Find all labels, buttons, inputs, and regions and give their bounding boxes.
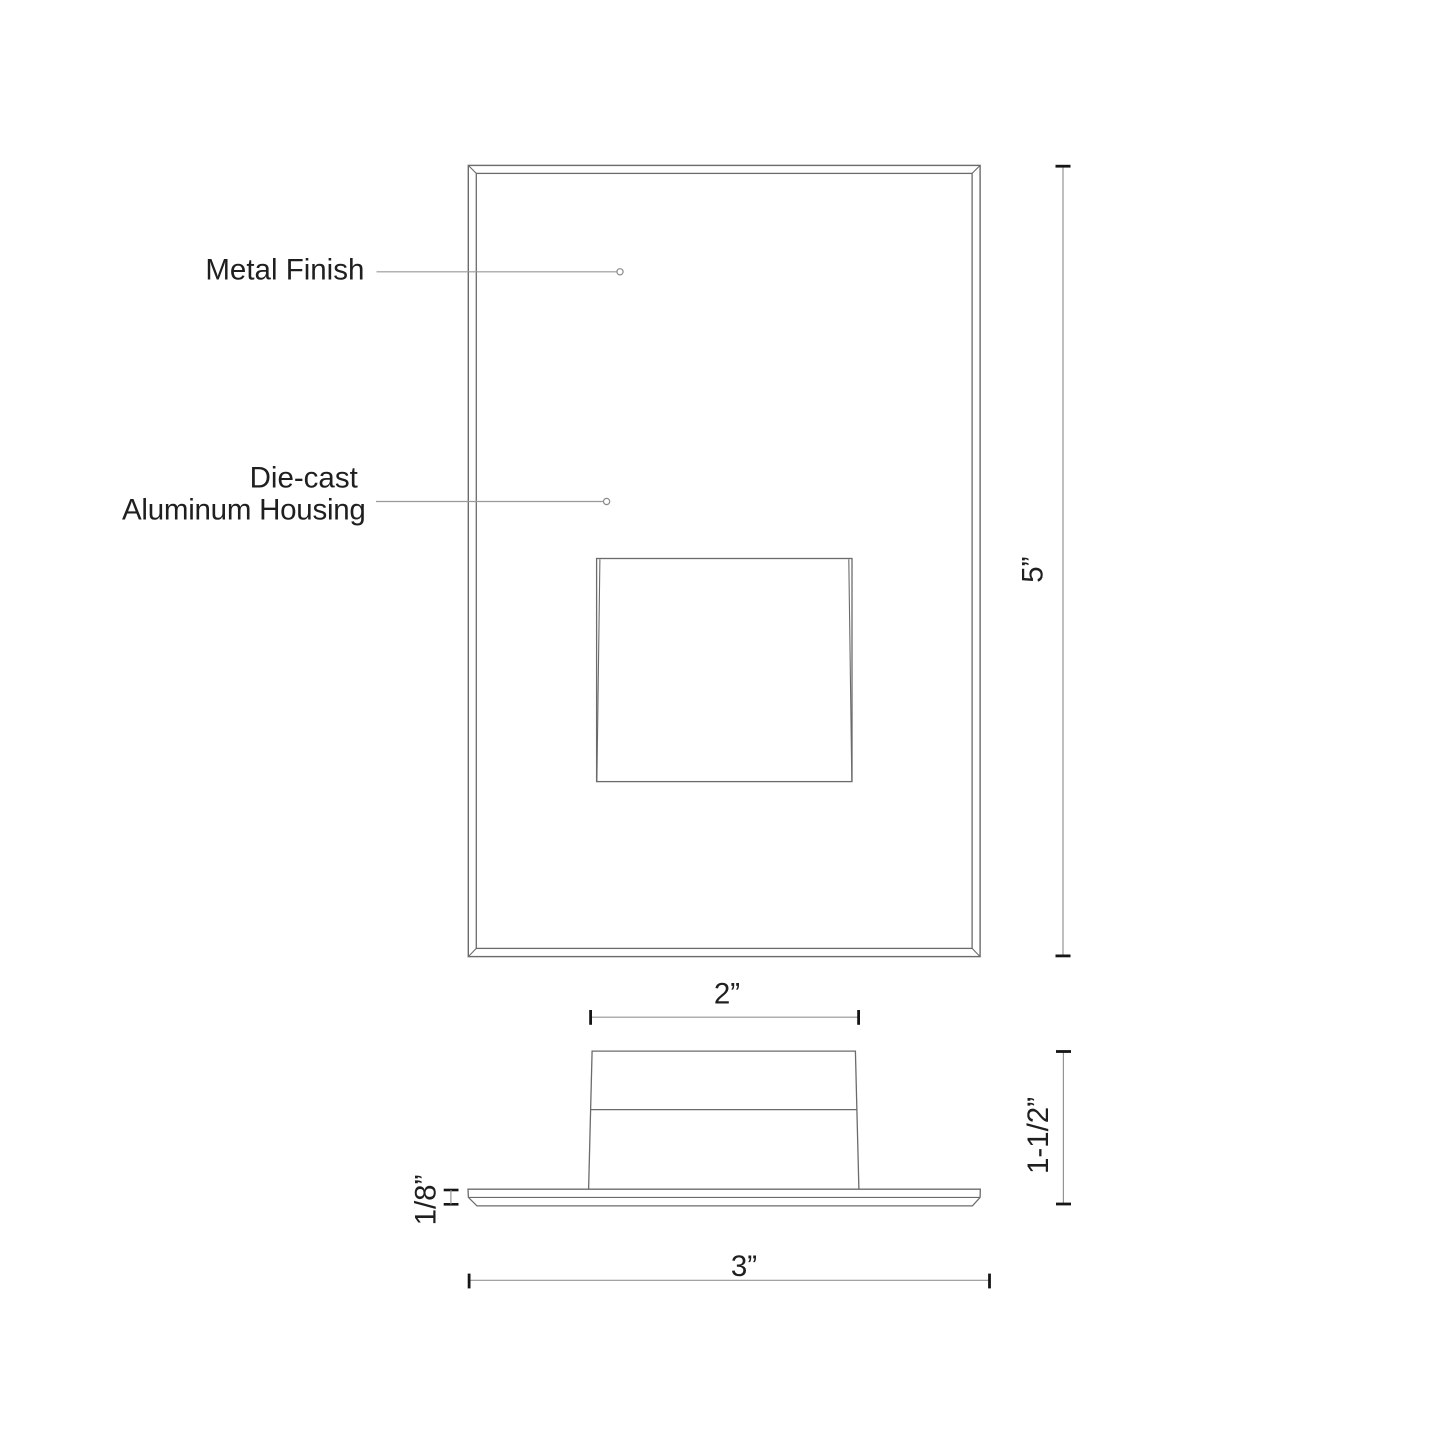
svg-text:Metal Finish: Metal Finish (205, 253, 364, 286)
svg-text:3”: 3” (731, 1250, 757, 1283)
svg-text:5”: 5” (1017, 556, 1050, 582)
svg-text:2”: 2” (714, 978, 740, 1011)
svg-text:Aluminum Housing: Aluminum Housing (122, 494, 366, 527)
svg-text:Die-cast: Die-cast (250, 461, 358, 494)
svg-text:1-1/2”: 1-1/2” (1022, 1097, 1055, 1174)
svg-text:1/8”: 1/8” (410, 1175, 443, 1226)
